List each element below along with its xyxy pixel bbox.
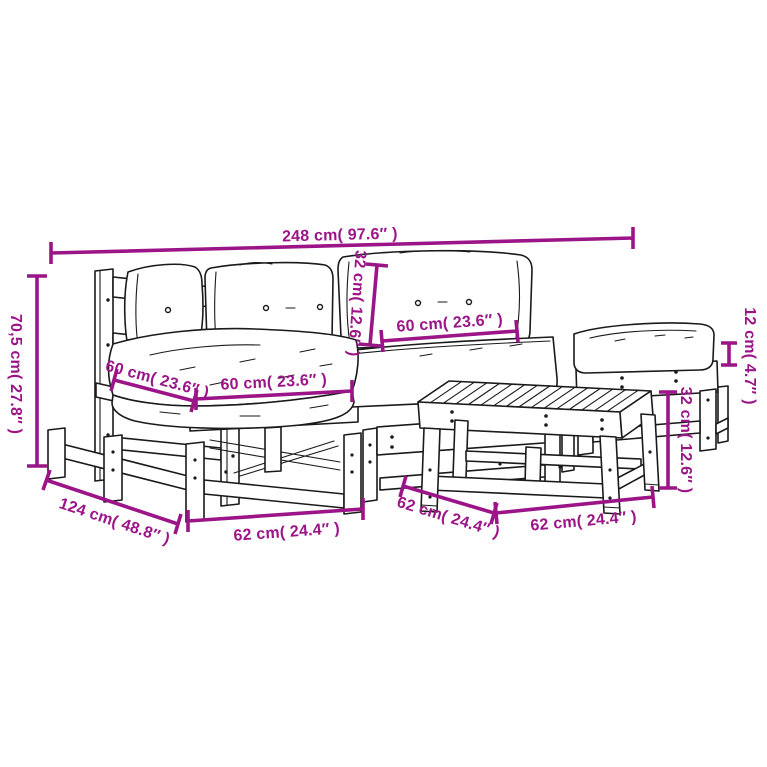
dim-total-width-label: 248 cm( 97.6″ ) xyxy=(282,225,398,245)
dim-ottoman-cushion-height-label: 12 cm( 4.7″ ) xyxy=(741,307,758,404)
furniture-dimension-diagram: 248 cm( 97.6″ ) 70,5 cm( 27.8″ ) 32 cm( … xyxy=(0,0,767,767)
dim-table-height-label: 32 cm( 12.6″ ) xyxy=(677,387,694,494)
dim-table-width-label: 62 cm( 24.4″ ) xyxy=(530,508,638,534)
dim-total-height-label: 70,5 cm( 27.8″ ) xyxy=(7,314,24,434)
dim-table-height: 32 cm( 12.6″ ) xyxy=(659,387,694,494)
coffee-table xyxy=(418,381,659,514)
diagram-canvas: 248 cm( 97.6″ ) 70,5 cm( 27.8″ ) 32 cm( … xyxy=(0,0,767,767)
dim-module-width-label: 62 cm( 24.4″ ) xyxy=(233,520,340,544)
dim-total-height: 70,5 cm( 27.8″ ) xyxy=(7,276,47,466)
